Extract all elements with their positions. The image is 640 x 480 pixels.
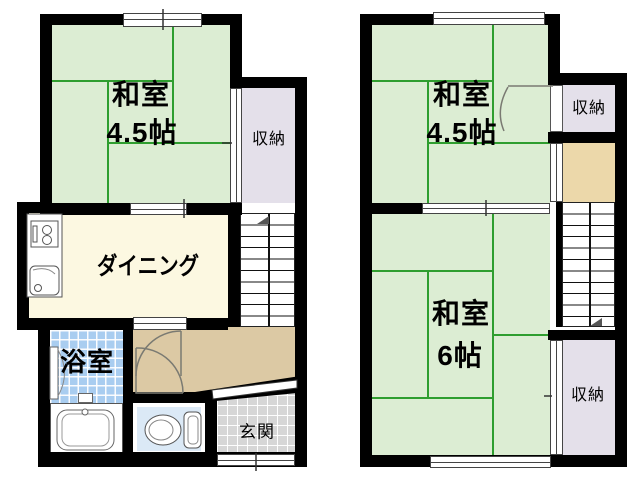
- f1-washitsu-label: 和室: [112, 81, 170, 109]
- f2-washitsu-large-size: 6帖: [437, 342, 483, 370]
- f2-storage-bottom-label: 収納: [571, 388, 605, 404]
- panel-ticks: [163, 9, 552, 471]
- f2-storage-door-arc: [500, 86, 553, 131]
- f1-storage-label: 収納: [252, 132, 286, 148]
- f1-entrance-label: 玄関: [239, 424, 275, 441]
- f1-bath-label: 浴室: [60, 349, 114, 375]
- f1-dining-label: ダイニング: [97, 255, 199, 279]
- f2-washitsu-large-label: 和室: [432, 300, 490, 328]
- stairs-arrow: [590, 318, 602, 326]
- f2-storage-top-label: 収納: [572, 101, 606, 117]
- f1-washitsu-size: 4.5帖: [107, 119, 178, 147]
- floor-plan: 和室 4.5帖 収納 ダイニング 浴室 玄関 和室 4.5帖 和室 6帖 収納 …: [0, 0, 640, 480]
- stairs-arrow: [257, 216, 269, 224]
- bathtub-icon: [57, 409, 114, 450]
- symbol-overlay: [0, 0, 640, 480]
- kitchen-counter-icon: [27, 214, 62, 297]
- toilet-icon: [145, 412, 201, 448]
- f2-washitsu-small-label: 和室: [433, 81, 491, 109]
- f2-washitsu-small-size: 4.5帖: [427, 119, 498, 147]
- hall-door-arcs: [136, 331, 183, 393]
